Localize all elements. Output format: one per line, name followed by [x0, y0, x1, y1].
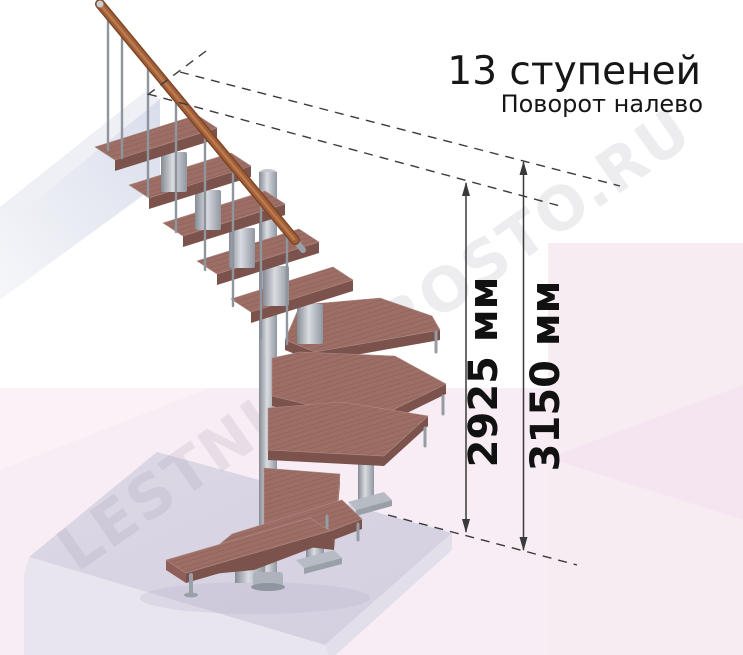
spine-cylinder	[195, 190, 221, 230]
diagram-subtitle: Поворот налево	[501, 90, 703, 118]
diagram-title: 13 ступеней	[447, 49, 701, 94]
spine-cylinder	[263, 266, 289, 306]
column-base-foot	[251, 583, 285, 591]
dimension-label-2925: 2925 мм	[461, 277, 507, 468]
staircase-diagram: LESTNICI-PROSTO.RU	[0, 0, 743, 655]
handrail-top-cap	[97, 1, 104, 8]
diagram-canvas: LESTNICI-PROSTO.RU	[0, 0, 743, 655]
spine-cylinder	[297, 304, 323, 344]
spine-cylinder	[161, 152, 187, 192]
step-leg-foot	[184, 593, 198, 598]
dimension-label-3150: 3150 мм	[523, 281, 569, 472]
